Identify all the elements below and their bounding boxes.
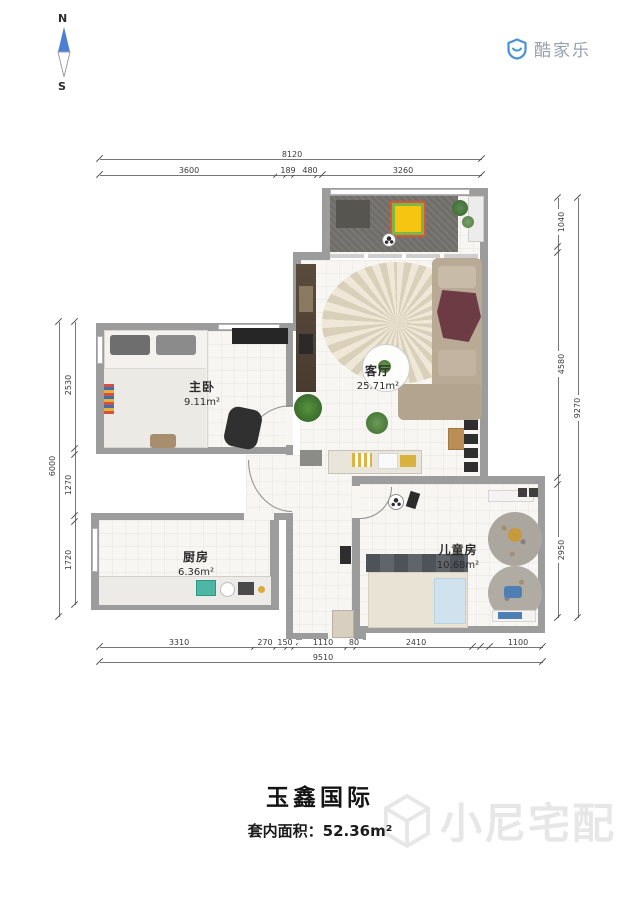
dim-label: 1720	[65, 547, 73, 573]
plan-area-line: 套内面积：52.36m²	[0, 820, 640, 841]
plant	[462, 216, 474, 228]
dim-line	[75, 322, 76, 605]
dim-label: 9510	[302, 654, 344, 662]
room-area: 6.36m²	[156, 567, 236, 578]
small-item	[258, 586, 265, 593]
brand-name: 酷家乐	[534, 36, 591, 61]
dim-label: 9270	[574, 395, 582, 421]
shield-smile-icon	[506, 38, 528, 60]
sideboard-item	[352, 453, 372, 467]
pillow	[110, 335, 150, 355]
room-label-living: 客厅 25.71m²	[338, 362, 418, 392]
wall	[352, 476, 545, 484]
dim-label: 4580	[558, 351, 566, 377]
plant	[452, 200, 468, 216]
appliance	[238, 582, 254, 595]
wall-shelf	[488, 490, 534, 502]
dim-label: 2410	[395, 639, 437, 647]
shoe-cabinet	[340, 546, 351, 564]
dim-tick	[574, 614, 581, 621]
plant	[366, 412, 388, 434]
room-name: 厨房	[156, 548, 236, 565]
dim-label: 6000	[49, 453, 57, 479]
tv-cabinet-shelf	[299, 286, 313, 312]
dim-label: 8120	[271, 151, 313, 159]
door-opening	[352, 486, 360, 518]
dim-label: 2530	[65, 372, 73, 398]
room-area: 25.71m²	[338, 381, 418, 392]
room-label-kitchen: 厨房 6.36m²	[156, 548, 236, 578]
dim-line	[59, 322, 60, 617]
appliance	[196, 580, 216, 596]
dim-label: 1100	[497, 639, 539, 647]
brand-logo: 酷家乐	[506, 36, 591, 61]
wall	[286, 520, 293, 640]
room-name: 主卧	[162, 378, 242, 395]
entry-door	[332, 610, 354, 638]
dim-label: 3600	[168, 167, 210, 175]
media-shelf	[464, 420, 478, 476]
soccer-ball	[388, 494, 404, 510]
floorplan-page: N S 酷家乐	[0, 0, 640, 905]
soccer-ball	[382, 233, 396, 247]
sideboard-item	[378, 453, 398, 469]
shelf-box	[529, 488, 538, 497]
toy-blue	[498, 612, 522, 619]
dim-label: 189	[277, 167, 299, 175]
tv-screen	[299, 334, 313, 354]
door-opening	[244, 513, 274, 520]
dim-tick	[55, 613, 62, 620]
artwork	[392, 203, 424, 235]
area-value: 52.36m²	[323, 822, 393, 840]
toy-blue	[504, 586, 522, 598]
room-label-master: 主卧 9.11m²	[162, 378, 242, 408]
room-area: 9.11m²	[162, 397, 242, 408]
wardrobe	[232, 328, 288, 344]
dim-tick	[539, 643, 546, 650]
master-side-window	[97, 336, 103, 364]
dim-label: 1270	[65, 472, 73, 498]
plate	[220, 582, 235, 597]
plan-title: 玉鑫国际	[0, 778, 640, 812]
plant	[294, 394, 322, 422]
dim-line	[100, 159, 482, 160]
dim-line	[100, 662, 543, 663]
dim-label: 80	[345, 639, 363, 647]
compass-north-label: N	[58, 12, 67, 25]
sofa-cushion	[438, 266, 476, 288]
balcony-clutter	[336, 200, 370, 228]
bed-end-item	[150, 434, 176, 448]
dim-label: 3260	[382, 167, 424, 175]
dim-label: 1110	[302, 639, 344, 647]
dim-label: 2950	[558, 537, 566, 563]
compass-needle-icon	[52, 26, 76, 78]
room-name: 儿童房	[418, 541, 498, 558]
sofa-cushion	[438, 350, 476, 376]
dim-tick	[554, 614, 561, 621]
compass-south-label: S	[58, 80, 66, 93]
dim-label: 480	[299, 167, 321, 175]
wall	[322, 188, 330, 260]
dim-label: 3310	[158, 639, 200, 647]
dim-tick	[539, 658, 546, 665]
room-label-kids: 儿童房 10.68m²	[418, 541, 498, 571]
room-area: 10.68m²	[418, 560, 498, 571]
dim-label: 150	[274, 639, 296, 647]
room-name: 客厅	[338, 362, 418, 379]
tv-cabinet	[296, 264, 316, 392]
balcony-window	[330, 189, 470, 195]
bench	[300, 450, 322, 466]
wall	[270, 513, 279, 610]
dim-tick	[478, 155, 485, 162]
dim-label: 1040	[558, 209, 566, 235]
pillow	[156, 335, 196, 355]
sideboard-item	[400, 455, 416, 467]
shelf-box	[518, 488, 527, 497]
pillow-blue	[434, 578, 466, 624]
kitchen-window	[92, 528, 98, 572]
dim-tick	[478, 171, 485, 178]
area-label: 套内面积：	[248, 822, 323, 840]
wall	[538, 476, 545, 633]
striped-pillow	[104, 384, 114, 414]
toy-gold	[508, 528, 522, 542]
dim-tick	[71, 601, 78, 608]
